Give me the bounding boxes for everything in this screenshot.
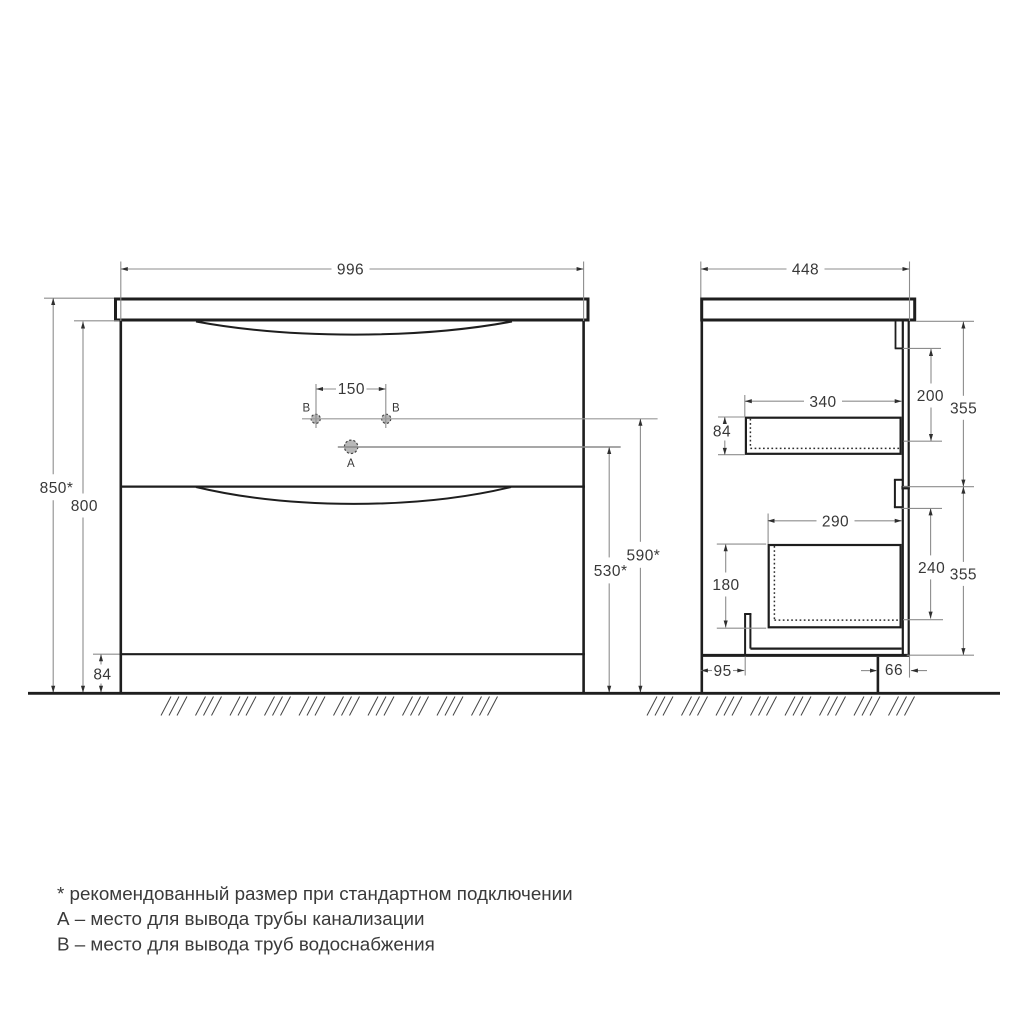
svg-text:84: 84 <box>713 424 731 441</box>
svg-text:66: 66 <box>885 662 903 679</box>
svg-text:590*: 590* <box>627 547 661 564</box>
svg-text:340: 340 <box>809 394 836 411</box>
svg-text:95: 95 <box>714 663 732 680</box>
svg-text:A: A <box>347 458 355 470</box>
svg-text:200: 200 <box>917 388 944 405</box>
svg-text:290: 290 <box>822 513 849 530</box>
svg-text:B: B <box>302 402 310 414</box>
svg-text:850*: 850* <box>40 480 74 497</box>
svg-text:А – место для вывода трубы кан: А – место для вывода трубы канализации <box>57 908 424 929</box>
svg-text:800: 800 <box>71 498 98 515</box>
svg-text:В – место для вывода труб водо: В – место для вывода труб водоснабжения <box>57 934 435 955</box>
svg-text:530*: 530* <box>594 563 628 580</box>
svg-text:* рекомендованный размер при с: * рекомендованный размер при стандартном… <box>57 883 573 904</box>
svg-text:996: 996 <box>337 262 364 279</box>
svg-text:150: 150 <box>338 381 365 398</box>
svg-text:84: 84 <box>93 667 111 684</box>
svg-text:240: 240 <box>918 560 945 577</box>
svg-text:448: 448 <box>792 262 819 279</box>
svg-text:B: B <box>392 402 400 414</box>
svg-text:355: 355 <box>950 567 977 584</box>
svg-text:355: 355 <box>950 400 977 417</box>
svg-text:180: 180 <box>712 577 739 594</box>
